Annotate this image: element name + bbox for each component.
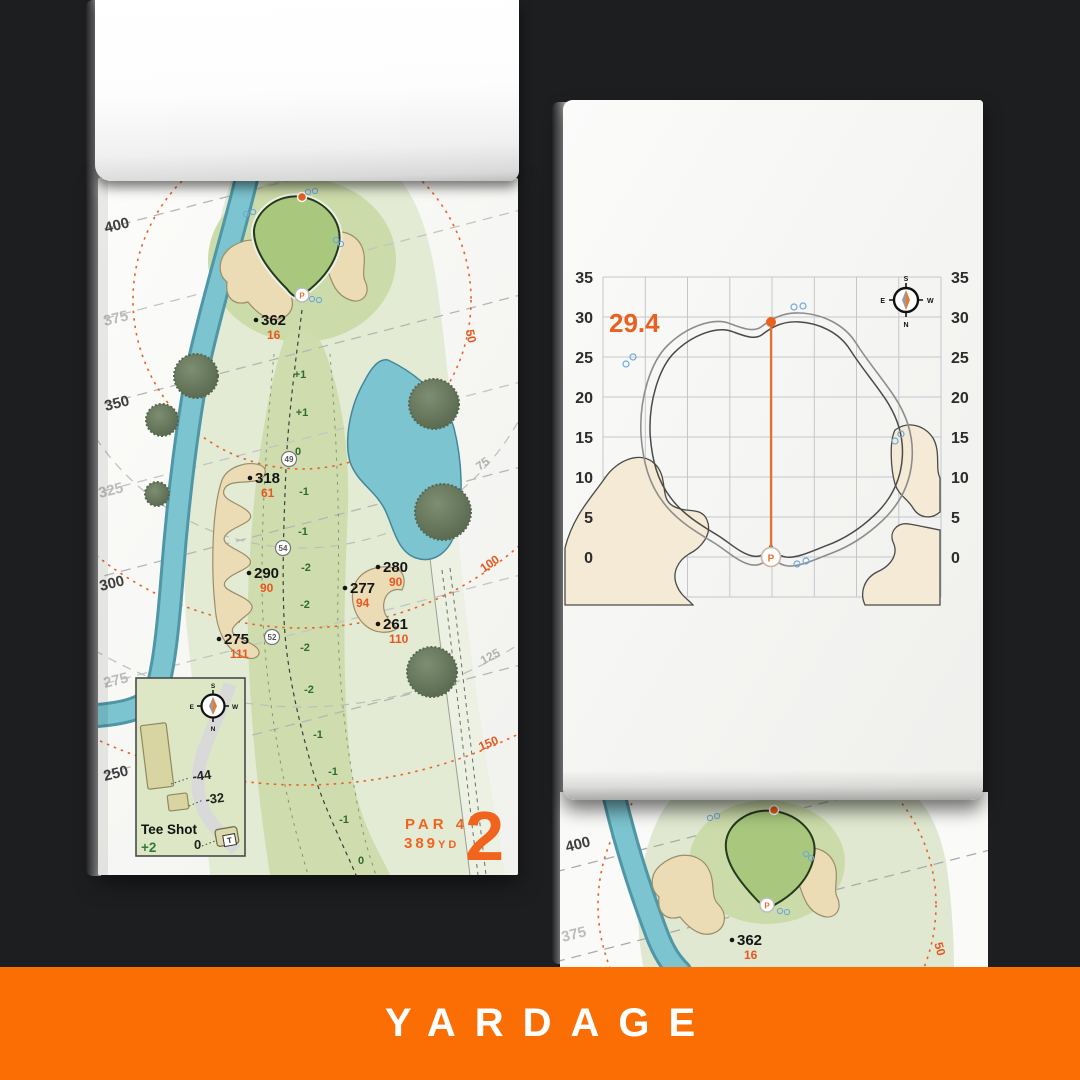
compass-w: W — [927, 298, 934, 305]
tick: 0 — [584, 550, 593, 567]
marker-carry: 362 — [261, 312, 286, 329]
tick: 25 — [575, 350, 593, 367]
centerline-value: +1 — [296, 407, 309, 419]
marker-carry: 290 — [254, 565, 279, 582]
next-page-marker-pitch: 16 — [744, 948, 758, 962]
depth-value: 29.4 — [609, 308, 660, 338]
compass-s: S — [904, 276, 909, 283]
marker-carry: 261 — [383, 616, 408, 633]
centerline-value: -1 — [298, 526, 308, 538]
inset-offset-44: -44 — [192, 767, 213, 784]
hole-number: 2 — [465, 797, 504, 875]
inset-landing-square — [167, 793, 189, 811]
tee-shot-inset: -44 -32 0 Tee Shot +2 T S N E — [136, 678, 245, 856]
marker-pitch: 61 — [261, 486, 275, 500]
marker-pitch: 111 — [230, 647, 249, 661]
par-label: PAR 4 — [405, 816, 468, 833]
centerline-value: -1 — [313, 729, 323, 741]
compass-e: E — [880, 298, 885, 305]
tick: 25 — [951, 350, 969, 367]
compass-n: N — [903, 322, 908, 329]
tick: 35 — [575, 270, 593, 287]
compass-s: S — [211, 683, 216, 690]
inset-offset-32: -32 — [205, 790, 225, 807]
centerline-value: -2 — [304, 684, 314, 696]
green-detail-page: P 29.4 35 30 25 20 15 10 5 0 — [563, 100, 983, 800]
marker-carry: 275 — [224, 631, 249, 648]
marker-carry: 280 — [383, 559, 408, 576]
inset-offset-0: 0 — [194, 837, 201, 852]
tick: 20 — [951, 390, 969, 407]
marker-pitch: 90 — [260, 581, 274, 595]
inset-title: Tee Shot — [141, 822, 198, 837]
centerline-value: 0 — [358, 855, 364, 867]
tick: 0 — [951, 550, 960, 567]
centerline-value: +1 — [294, 369, 307, 381]
next-page-depth-dot — [770, 806, 779, 815]
centerline-value: -1 — [299, 486, 309, 498]
yardage-banner: YARDAGE — [0, 967, 1080, 1080]
compass-e: E — [190, 704, 195, 711]
tick: 5 — [584, 510, 593, 527]
compass-w: W — [232, 704, 239, 711]
centerline-value: -1 — [328, 766, 338, 778]
hole-pin-label: P — [299, 292, 305, 301]
yardage-unit: YD — [438, 839, 459, 851]
yardage-value: 389 — [404, 835, 438, 852]
checkpoint-value: 49 — [285, 455, 294, 464]
green-depth-dot — [298, 193, 307, 202]
hole-map: P +1 +1 0 -1 — [98, 178, 518, 875]
banner-title: YARDAGE — [366, 1001, 714, 1046]
centerline-value: -2 — [300, 599, 310, 611]
centerline-value: -1 — [339, 814, 349, 826]
tick: 30 — [951, 310, 969, 327]
page-left-shade — [98, 178, 108, 875]
green-detail-chart: P 29.4 35 30 25 20 15 10 5 0 — [563, 100, 983, 800]
next-page-pin-label: P — [764, 902, 770, 911]
page-bottom-curl — [563, 770, 983, 800]
tick: 5 — [951, 510, 960, 527]
tick: 30 — [575, 310, 593, 327]
tick: 20 — [575, 390, 593, 407]
checkpoint-value: 54 — [279, 544, 288, 553]
marker-pitch: 16 — [267, 328, 281, 342]
inset-value: +2 — [141, 840, 156, 855]
next-page-map: P 400 375 362 16 50 — [560, 792, 988, 970]
hole-map-page: P +1 +1 0 -1 — [98, 178, 518, 875]
tick: 15 — [575, 430, 593, 447]
centerline-value: -2 — [301, 562, 311, 574]
tick: 35 — [951, 270, 969, 287]
product-image: P 400 375 362 16 50 — [0, 0, 1080, 1080]
tick: 10 — [951, 470, 969, 487]
tee-box-icon: T — [215, 826, 240, 848]
flipped-blank-page — [95, 0, 519, 181]
tick: 10 — [575, 470, 593, 487]
marker-carry: 318 — [255, 470, 280, 487]
marker-pitch: 90 — [389, 575, 403, 589]
next-page-marker-dot — [730, 938, 735, 943]
marker-pitch: 94 — [356, 596, 370, 610]
pin-label: P — [768, 554, 775, 565]
centerline-value: -2 — [300, 642, 310, 654]
tick: 15 — [951, 430, 969, 447]
next-page-marker-carry: 362 — [737, 932, 762, 949]
checkpoint-value: 52 — [268, 633, 277, 642]
compass-n: N — [211, 726, 216, 733]
marker-carry: 277 — [350, 580, 375, 597]
next-page: P 400 375 362 16 50 — [560, 792, 988, 970]
depth-dot — [766, 317, 776, 327]
marker-pitch: 110 — [389, 632, 409, 646]
